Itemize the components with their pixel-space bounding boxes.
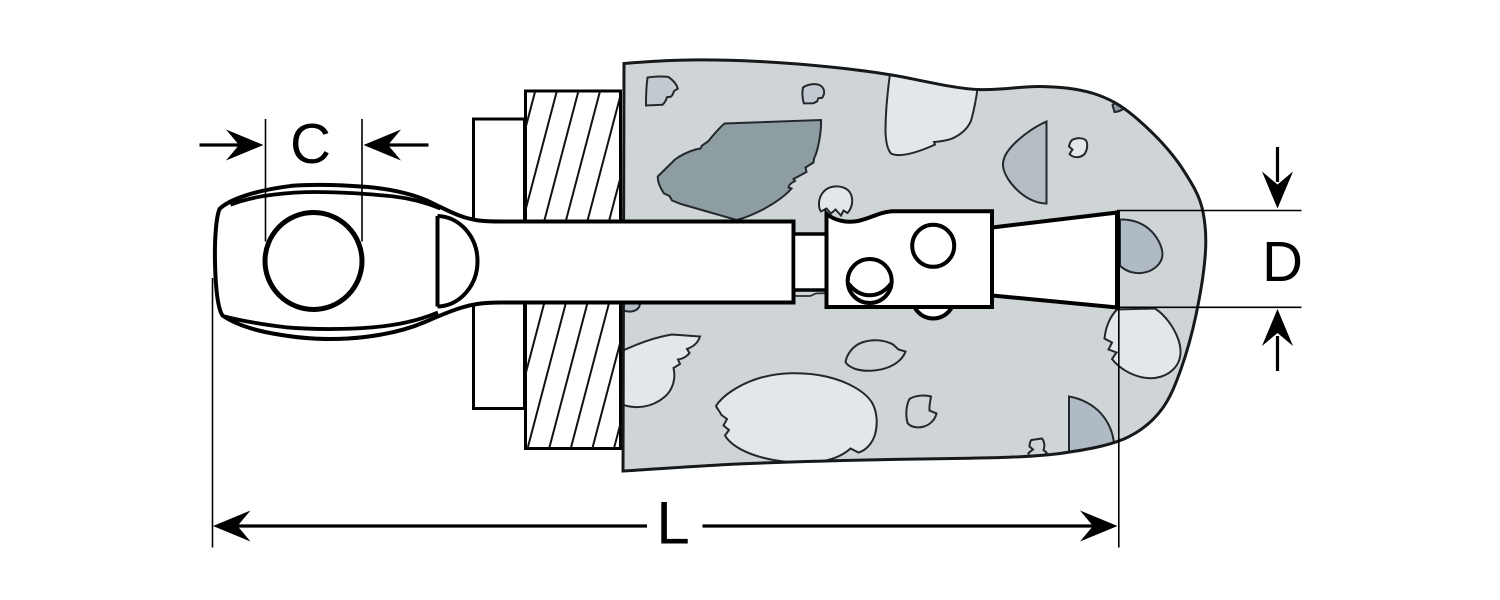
svg-text:C: C <box>290 112 331 175</box>
svg-text:D: D <box>1262 230 1303 293</box>
svg-text:L: L <box>656 490 689 557</box>
